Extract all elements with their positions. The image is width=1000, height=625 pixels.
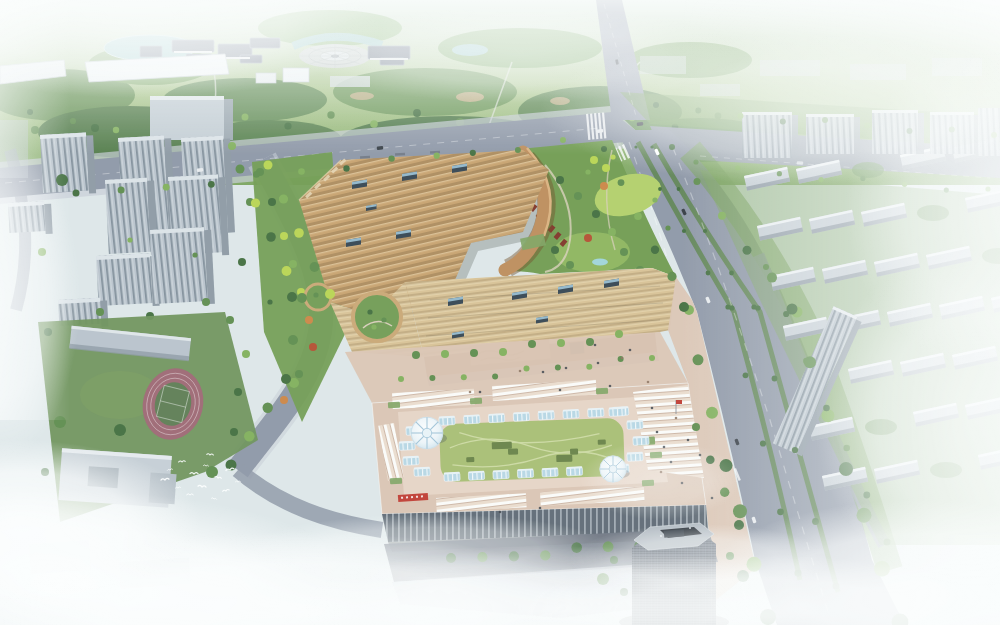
color-grade (0, 0, 1000, 625)
aerial-rendering (0, 0, 1000, 625)
rendering-image (0, 0, 1000, 625)
